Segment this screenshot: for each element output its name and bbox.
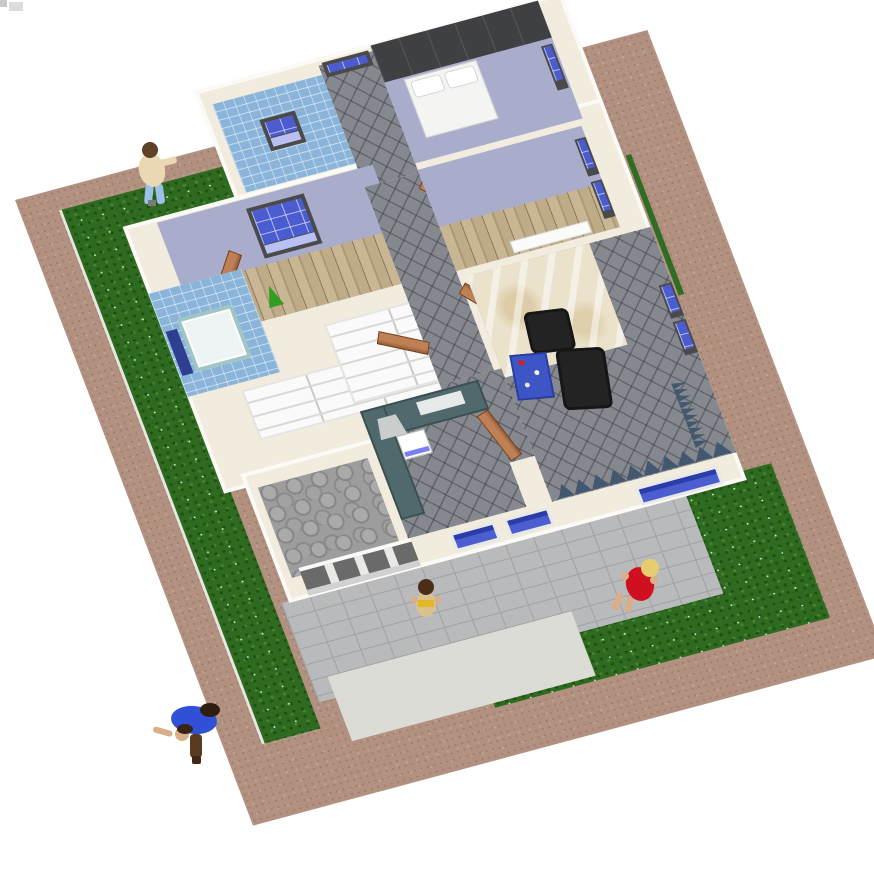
corner-artifact — [9, 2, 23, 11]
armchair — [523, 308, 577, 355]
stove-knobs — [404, 446, 430, 457]
table-item — [524, 382, 530, 387]
table-item — [534, 370, 540, 375]
person-bending-driveway — [152, 696, 232, 768]
bathroom-window — [259, 111, 306, 152]
bedroom-window — [246, 193, 323, 258]
bed-pillow — [410, 74, 446, 99]
render-viewport[interactable] — [0, 0, 874, 884]
child-kitchen-door — [406, 574, 446, 630]
curtain — [671, 380, 710, 448]
woman-living-room — [610, 548, 668, 620]
corner-artifact — [0, 0, 7, 7]
table-item — [518, 360, 525, 366]
sofa — [555, 347, 614, 411]
bed-pillow — [443, 65, 479, 90]
person-northwest — [126, 138, 180, 212]
